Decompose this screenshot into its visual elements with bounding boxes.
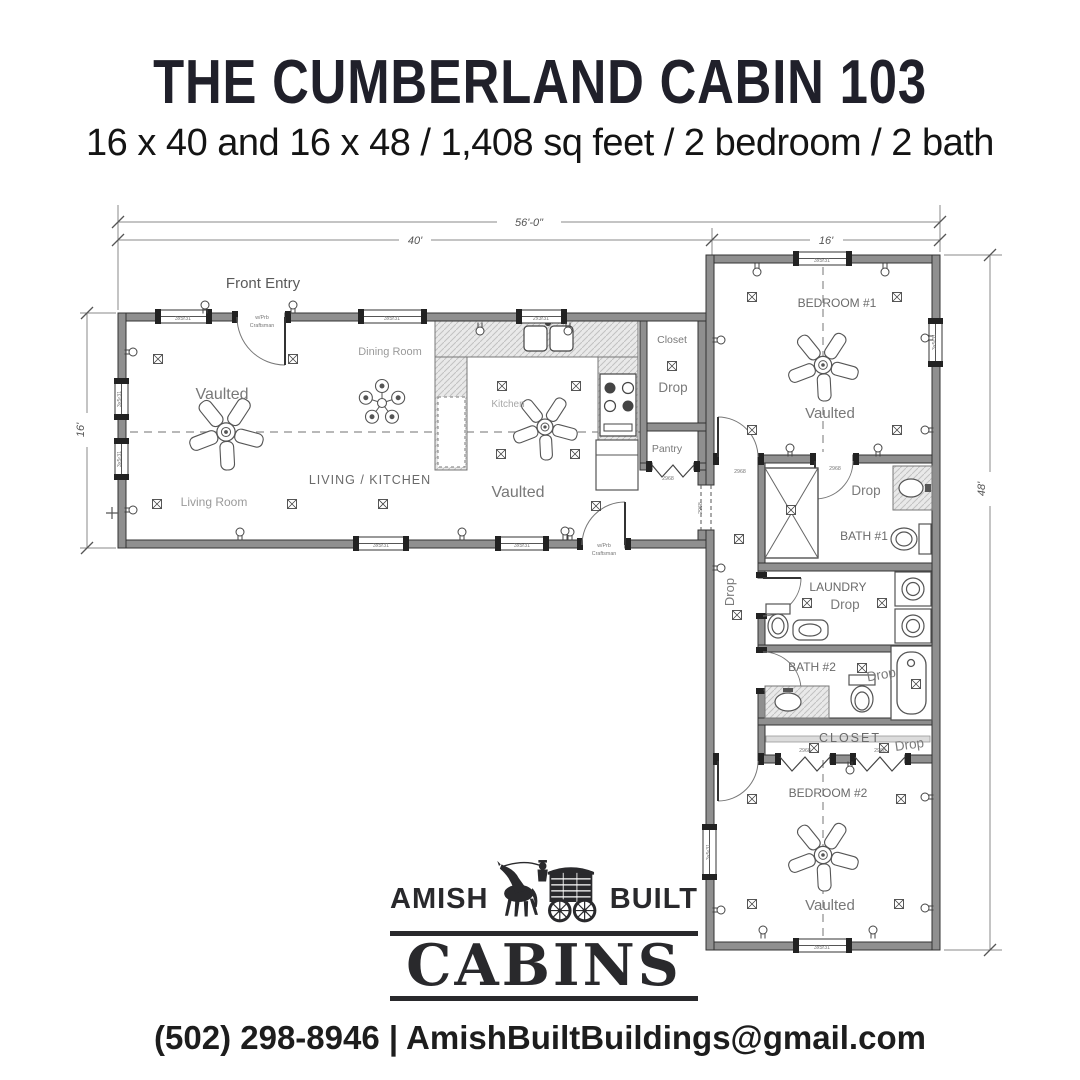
label-drop-laundry: Drop bbox=[830, 597, 859, 612]
size-label: 3x5r31 bbox=[814, 258, 830, 264]
junction-box-icon bbox=[733, 611, 742, 620]
outlet-icon bbox=[869, 926, 877, 939]
size-label: w/Prb bbox=[597, 543, 611, 549]
dim-right-wing-depth: 48' bbox=[976, 481, 988, 496]
label-kitchen: Kitchen bbox=[491, 399, 524, 410]
dim-overall-width: 56'-0" bbox=[515, 217, 544, 229]
doors bbox=[237, 317, 905, 801]
size-label: 2968 bbox=[829, 466, 841, 472]
rear-door-arc bbox=[582, 502, 625, 545]
outlet-icon bbox=[753, 264, 761, 277]
label-living-room: Living Room bbox=[181, 495, 248, 509]
dim-left-wing-depth: 16' bbox=[75, 422, 87, 437]
junction-box-icon bbox=[787, 506, 796, 515]
label-closet-2: CLOSET bbox=[819, 731, 881, 745]
junction-box-icon bbox=[912, 680, 921, 689]
label-drop-hall: Drop bbox=[722, 578, 737, 606]
size-label: 2968 bbox=[799, 748, 811, 754]
bath1-vanity-icon bbox=[893, 466, 932, 510]
junction-box-icon bbox=[878, 599, 887, 608]
label-laundry: LAUNDRY bbox=[809, 580, 866, 594]
size-label: 2968 bbox=[662, 476, 674, 482]
laundry-toilet-icon bbox=[766, 604, 790, 638]
size-label: 3x5r31 bbox=[117, 391, 123, 407]
size-label: 3x5r31 bbox=[514, 543, 530, 549]
junction-box-icon bbox=[379, 500, 388, 509]
contact-info: (502) 298-8946 | AmishBuiltBuildings@gma… bbox=[0, 1019, 1080, 1057]
logo-word-cabins: CABINS bbox=[390, 937, 698, 995]
ceiling-fan-icon bbox=[188, 396, 264, 470]
size-label: 3x5r31 bbox=[117, 451, 123, 467]
junction-box-icon bbox=[571, 450, 580, 459]
label-bedroom-2: BEDROOM #2 bbox=[789, 786, 868, 800]
label-dining-room: Dining Room bbox=[358, 346, 422, 358]
outlet-icon bbox=[236, 528, 244, 541]
size-label: 2968 bbox=[698, 502, 704, 514]
chandelier-icon bbox=[359, 380, 404, 424]
label-living-kitchen: LIVING / KITCHEN bbox=[309, 473, 431, 487]
fridge-icon bbox=[596, 440, 638, 490]
junction-box-icon bbox=[592, 502, 601, 511]
junction-box-icon bbox=[748, 426, 757, 435]
kitchen-counters bbox=[435, 321, 638, 491]
label-bedroom-1: BEDROOM #1 bbox=[798, 296, 877, 310]
label-drop-closet-2: Drop bbox=[894, 735, 925, 754]
size-label: 2x3r31 bbox=[533, 316, 549, 322]
junction-box-icon bbox=[893, 426, 902, 435]
label-pantry: Pantry bbox=[652, 443, 683, 455]
junction-box-icon bbox=[748, 293, 757, 302]
junction-box-icon bbox=[153, 500, 162, 509]
junction-box-icon bbox=[498, 382, 507, 391]
washer-icon bbox=[895, 572, 931, 606]
size-label: 2968 bbox=[874, 748, 886, 754]
logo-word-amish: AMISH bbox=[390, 883, 488, 930]
outlet-icon bbox=[881, 264, 889, 277]
size-label: 3x5r31 bbox=[373, 543, 389, 549]
junction-box-icon bbox=[497, 450, 506, 459]
laundry-sink-icon bbox=[793, 620, 828, 640]
junction-box-icon bbox=[668, 362, 677, 371]
label-vaulted-bedroom-1: Vaulted bbox=[805, 405, 855, 422]
dim-left-wing-width: 40' bbox=[408, 235, 423, 247]
ridge-lines bbox=[130, 267, 823, 936]
wagon-wheels bbox=[550, 900, 595, 921]
size-label: 3x5r31 bbox=[814, 945, 830, 951]
junction-box-icon bbox=[748, 900, 757, 909]
junction-box-icon bbox=[893, 293, 902, 302]
ceiling-fans-layer bbox=[188, 331, 859, 891]
bath2-fixtures bbox=[765, 646, 932, 720]
label-bath-2: BATH #2 bbox=[788, 660, 836, 674]
label-drop-bath-1: Drop bbox=[851, 483, 880, 498]
junction-box-icon bbox=[748, 795, 757, 804]
label-vaulted-kitchen: Vaulted bbox=[491, 484, 544, 501]
label-vaulted-living: Vaulted bbox=[195, 386, 248, 403]
bath2-vanity-icon bbox=[765, 686, 829, 718]
dryer-icon bbox=[895, 609, 931, 643]
refrigerator-space bbox=[438, 397, 465, 467]
junction-box-icon bbox=[897, 795, 906, 804]
bedroom1-door-arc bbox=[718, 417, 758, 457]
outlet-icon bbox=[759, 926, 767, 939]
junction-box-icon bbox=[288, 500, 297, 509]
label-front-entry: Front Entry bbox=[226, 275, 301, 292]
horse-and-wagon-icon bbox=[493, 850, 604, 930]
size-label: 3x5r31 bbox=[175, 316, 191, 322]
size-label: Craftsman bbox=[592, 551, 616, 557]
porch-dim-marker bbox=[106, 507, 118, 519]
junction-box-icon bbox=[154, 355, 163, 364]
junction-box-icon bbox=[895, 900, 904, 909]
outlet-icon bbox=[458, 528, 466, 541]
label-bath-1: BATH #1 bbox=[840, 529, 888, 543]
label-drop-closet: Drop bbox=[658, 380, 687, 395]
label-closet-front: Closet bbox=[657, 334, 687, 346]
size-label: 2968 bbox=[734, 469, 746, 475]
junction-box-icon bbox=[803, 599, 812, 608]
stove-icon bbox=[600, 374, 636, 436]
size-label: 3x5r31 bbox=[384, 316, 400, 322]
junction-box-icon bbox=[572, 382, 581, 391]
size-label: 3x5r31 bbox=[706, 844, 712, 860]
size-label: w/Prb bbox=[255, 315, 269, 321]
bath1-toilet-icon bbox=[891, 524, 931, 554]
junction-box-icon bbox=[289, 355, 298, 364]
amish-built-cabins-logo: AMISH bbox=[390, 848, 698, 1002]
dim-right-wing-width: 16' bbox=[819, 235, 834, 247]
size-label: 3x5r31 bbox=[932, 334, 938, 350]
label-vaulted-bedroom-2: Vaulted bbox=[805, 897, 855, 914]
junction-box-icon bbox=[735, 535, 744, 544]
logo-word-built: BUILT bbox=[610, 883, 698, 930]
size-label: Craftsman bbox=[250, 323, 274, 329]
